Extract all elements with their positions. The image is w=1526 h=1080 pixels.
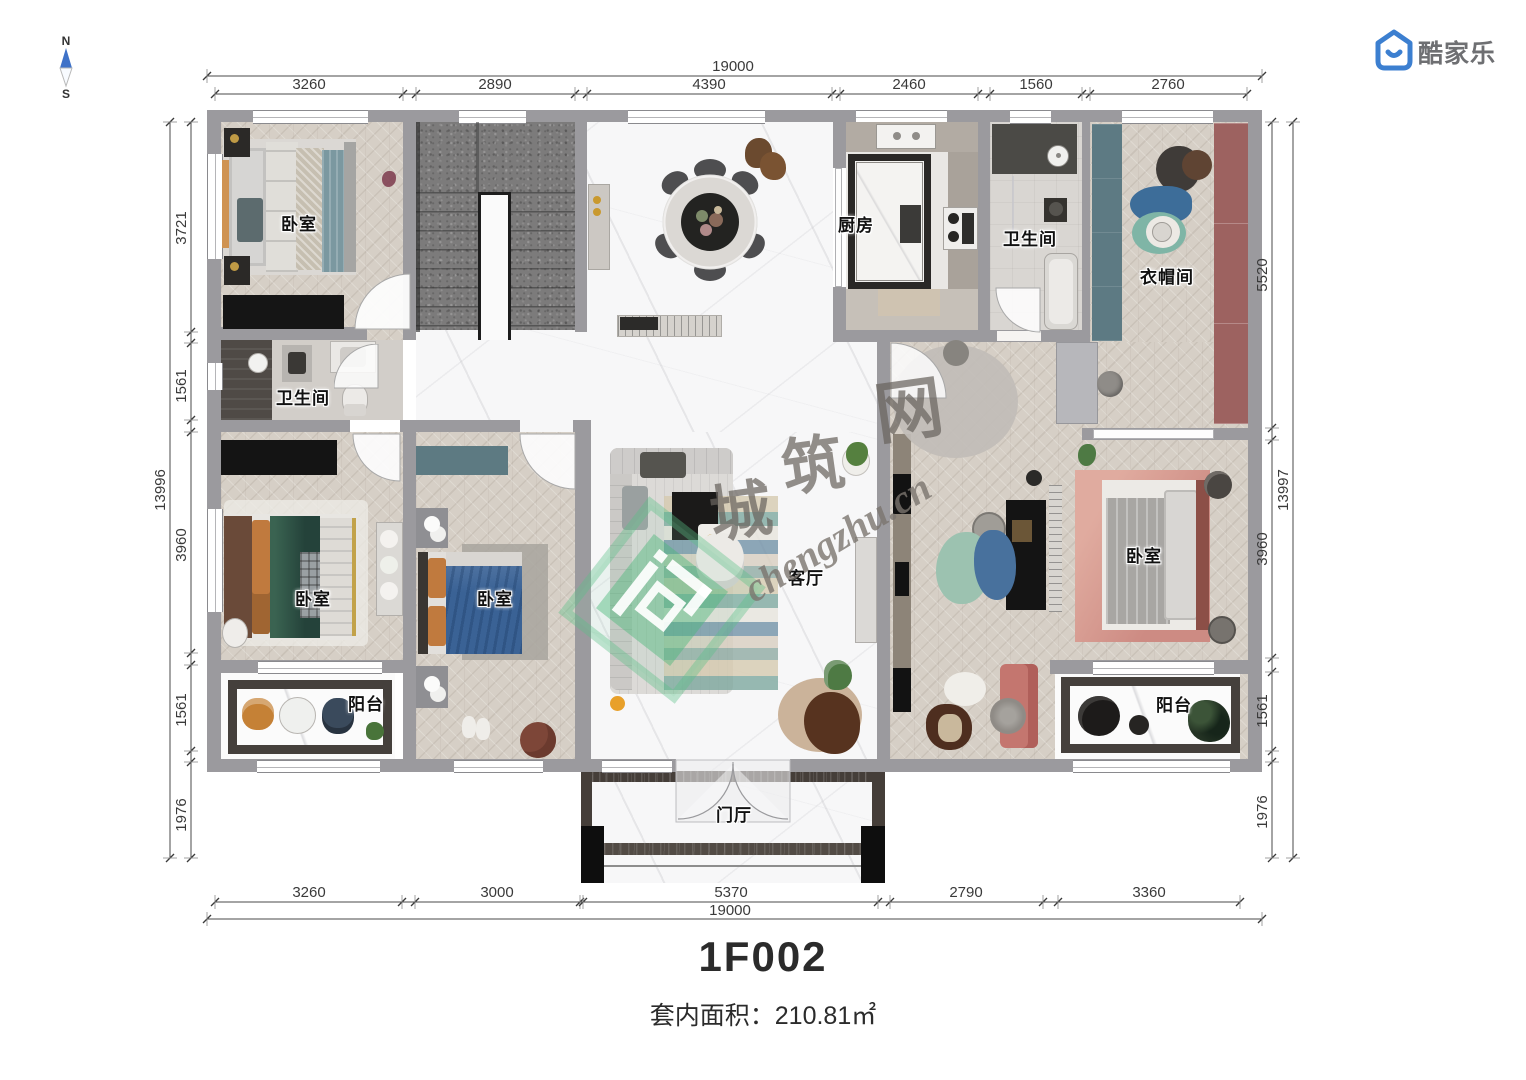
svg-text:1561: 1561	[173, 369, 190, 402]
svg-text:2760: 2760	[1151, 76, 1184, 93]
svg-text:2460: 2460	[892, 76, 925, 93]
svg-text:1976: 1976	[1254, 795, 1271, 828]
svg-text:2790: 2790	[949, 884, 982, 901]
svg-text:2890: 2890	[478, 76, 511, 93]
svg-text:5370: 5370	[714, 884, 747, 901]
svg-text:13996: 13996	[152, 469, 169, 511]
svg-text:酷家乐: 酷家乐	[1418, 39, 1496, 68]
svg-text:S: S	[62, 87, 70, 100]
svg-text:3360: 3360	[1132, 884, 1165, 901]
svg-text:1560: 1560	[1019, 76, 1052, 93]
svg-text:3721: 3721	[173, 211, 190, 244]
svg-text:13997: 13997	[1275, 469, 1292, 511]
svg-text:19000: 19000	[709, 902, 751, 919]
svg-text:3260: 3260	[292, 884, 325, 901]
svg-text:4390: 4390	[692, 76, 725, 93]
svg-text:1561: 1561	[173, 693, 190, 726]
svg-text:N: N	[62, 34, 71, 48]
svg-text:3000: 3000	[480, 884, 513, 901]
svg-text:19000: 19000	[712, 58, 754, 75]
svg-text:1976: 1976	[173, 798, 190, 831]
svg-text:3260: 3260	[292, 76, 325, 93]
svg-text:3960: 3960	[173, 528, 190, 561]
